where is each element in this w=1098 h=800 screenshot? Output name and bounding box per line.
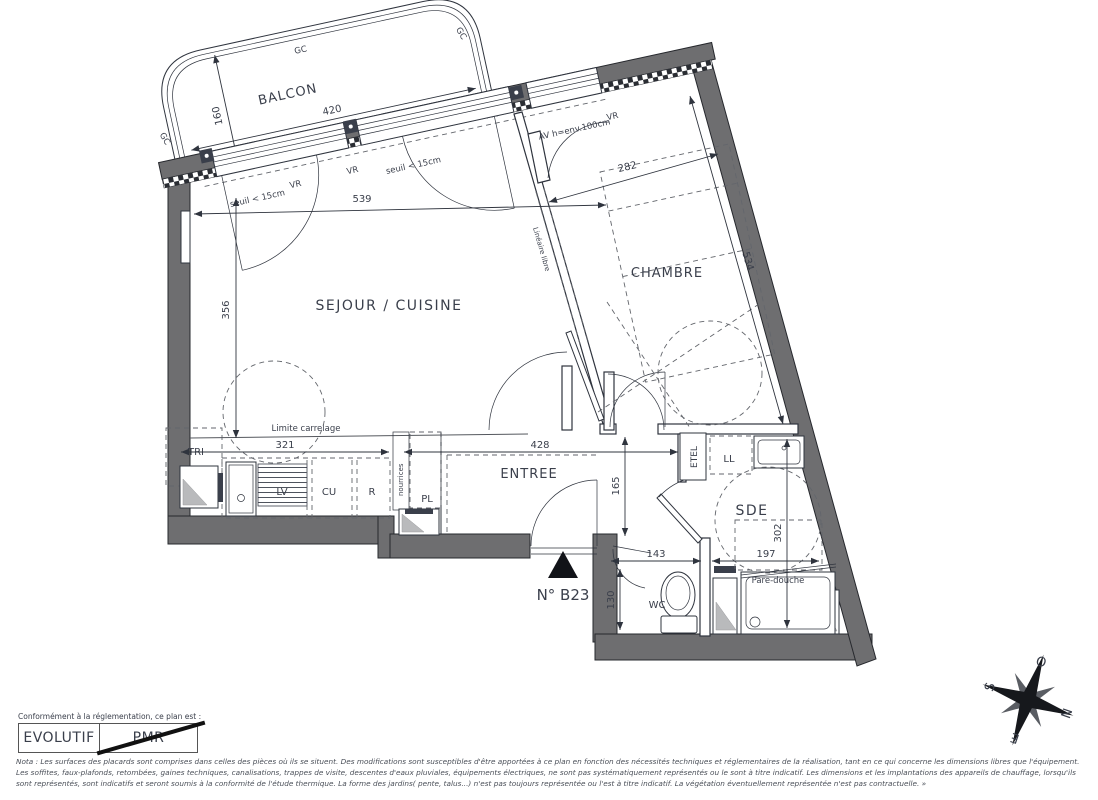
entrance-door-swing xyxy=(531,480,597,546)
door-swing-sejour-hall xyxy=(489,352,567,430)
dim-197: 197 xyxy=(756,549,775,560)
gc-label-right: GC xyxy=(453,26,468,42)
wall-kitchen-bottom xyxy=(168,516,392,544)
dim-539: 539 xyxy=(352,194,371,205)
compass-s: S xyxy=(982,681,999,694)
balcony-depth-dim: 160 xyxy=(211,105,226,126)
compass-rose-icon: N E S O xyxy=(982,654,1074,746)
wc-door-swing xyxy=(613,549,645,588)
wall-chambre-bottom xyxy=(658,424,798,434)
dim-356: 356 xyxy=(221,300,232,319)
nota-text: Nota : Les surfaces des placards sont co… xyxy=(16,757,1084,790)
compass-o: O xyxy=(1034,654,1049,672)
lv-label: LV xyxy=(276,487,287,498)
radiator-sejour xyxy=(181,211,190,263)
wc-label: WC xyxy=(649,600,666,611)
floor-plan-drawing: BALCON GC GC GC 420 160 xyxy=(0,0,1098,800)
av-window-label: AV h=env.100cm xyxy=(538,117,612,142)
door-jamb-b xyxy=(604,372,614,430)
limite-carrelage-line xyxy=(190,434,528,438)
circulation-line-2 xyxy=(607,302,690,428)
dim-428: 428 xyxy=(530,440,549,451)
tri-label: TRI xyxy=(187,447,204,458)
balcony-label: BALCON xyxy=(257,81,319,108)
unit-number: N° B23 xyxy=(537,551,590,604)
toilet-tank xyxy=(661,616,697,633)
limite-carrelage-label: Limite carrelage xyxy=(272,424,341,434)
wc-door-leaf xyxy=(613,546,651,553)
dim-130: 130 xyxy=(606,590,617,609)
washbasin xyxy=(754,436,804,468)
compass-e: E xyxy=(1009,729,1022,746)
seuil-label-1: seuil < 15cm xyxy=(229,188,286,210)
floor-plan-page: BALCON GC GC GC 420 160 xyxy=(0,0,1098,800)
sde-label: SDE xyxy=(735,503,768,519)
wall-wc-bottom xyxy=(595,634,872,660)
evolutif-label: EVOLUTIF xyxy=(19,724,100,752)
compliance-intro: Conformément à la réglementation, ce pla… xyxy=(18,712,201,721)
dim-321: 321 xyxy=(275,440,294,451)
dim-282: 282 xyxy=(617,160,638,175)
ll-label: LL xyxy=(723,454,735,465)
door-swing-hall xyxy=(608,374,664,430)
vr-label-2: VR xyxy=(346,165,360,177)
circulation-line-1 xyxy=(598,302,762,412)
pare-douche-label: Pare-douche xyxy=(752,576,805,586)
unit-number-label: N° B23 xyxy=(537,586,590,604)
compliance-block: Conformément à la réglementation, ce pla… xyxy=(18,712,201,753)
compass-n: N xyxy=(1057,706,1074,720)
balcony-length-dim: 420 xyxy=(322,103,343,118)
gc-label-top: GC xyxy=(294,44,308,56)
wall-hall-right xyxy=(593,534,617,642)
sejour-label: SEJOUR / CUISINE xyxy=(316,298,463,314)
door-jamb-a xyxy=(562,366,572,430)
wall-wc-sde xyxy=(700,538,710,636)
turning-circle-sejour xyxy=(223,361,325,463)
r-label: R xyxy=(369,487,376,498)
chambre-label: CHAMBRE xyxy=(631,266,703,281)
sink-unit xyxy=(226,462,256,516)
nourrices-label: nourrices xyxy=(397,463,405,496)
dashed-guides: Linéaire libre xyxy=(181,144,821,573)
dim-165: 165 xyxy=(611,476,622,495)
wall-top-facade xyxy=(158,40,738,283)
wall-entree-bottom xyxy=(390,534,530,558)
vr-label-1: VR xyxy=(289,179,303,191)
pl-label: PL xyxy=(421,494,433,505)
sde-door-leaf xyxy=(657,494,702,543)
seuil-label-2: seuil < 15cm xyxy=(385,155,442,177)
etel-label: ETEL xyxy=(690,446,700,468)
dim-143: 143 xyxy=(646,549,665,560)
compliance-box: EVOLUTIF PMR xyxy=(18,723,198,753)
door-swing-chambre xyxy=(610,372,665,427)
entree-label: ENTREE xyxy=(500,467,557,482)
window-chambre xyxy=(526,68,602,109)
cu-label: CU xyxy=(322,487,336,498)
entrance-marker-icon xyxy=(548,551,578,578)
dim-302: 302 xyxy=(773,523,784,542)
doors xyxy=(489,122,702,588)
dishwasher xyxy=(258,464,307,506)
kitchen: TRI LV CU R Limite carrelage nourrices P… xyxy=(166,424,528,518)
